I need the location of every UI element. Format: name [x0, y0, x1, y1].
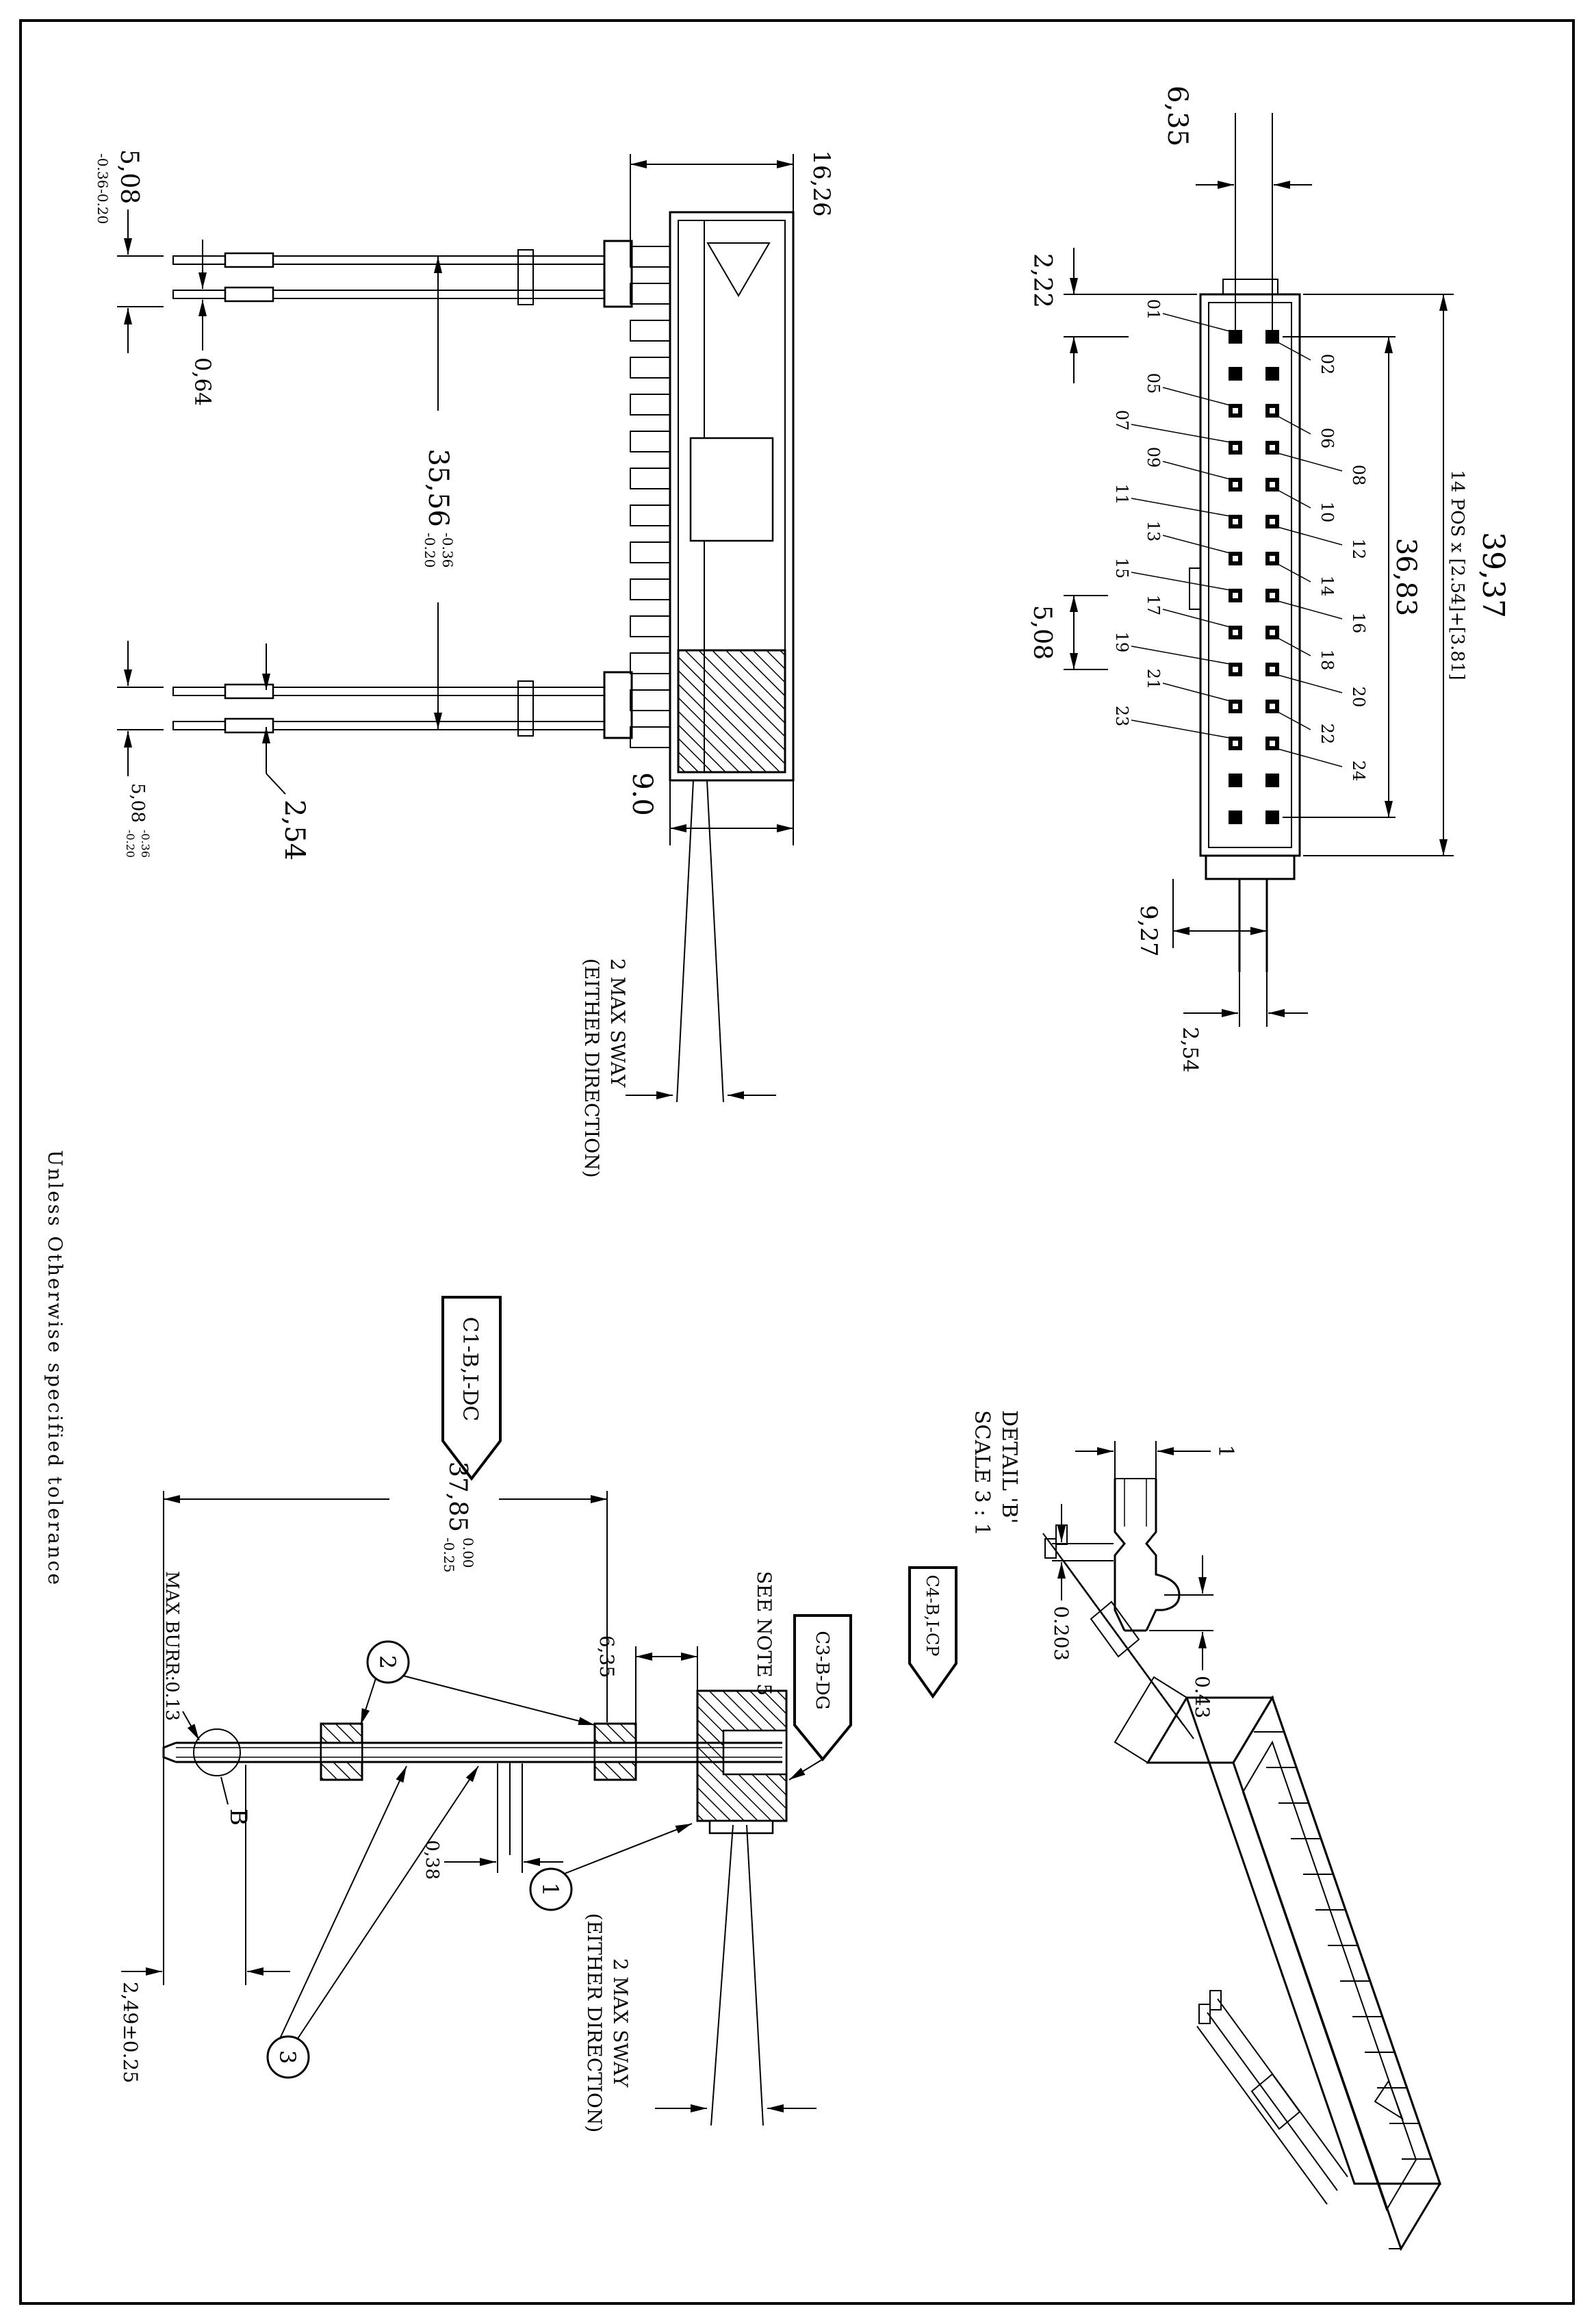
max-burr-note: MAX BURR:0.13	[162, 1571, 199, 1740]
dim-text: 16,26	[808, 150, 835, 216]
dim-text: 2,49±0.25	[119, 1982, 142, 2083]
dim-1: 1	[1075, 1441, 1237, 1479]
dim-text: 1	[1213, 1444, 1237, 1457]
rotated-drawing-area: 01 05 07 09 11 13 15 17 19 21 23 02 06 0…	[0, 0, 1594, 2324]
dim-text: 5,08	[1028, 605, 1056, 660]
pin-label: 07	[1112, 410, 1131, 431]
pin-label: 10	[1317, 502, 1337, 523]
max-burr-text: MAX BURR:0.13	[162, 1571, 182, 1721]
tol-lo: -0.25	[441, 1537, 457, 1572]
assembly-sway-callout: 2 MAX SWAY (EITHER DIRECTION)	[583, 1825, 817, 2132]
pin-label: 08	[1349, 465, 1368, 486]
dim-5-08-right: 5,08 -0.36 -0.20	[117, 641, 164, 858]
pin-label: 24	[1349, 761, 1368, 782]
tol-lo: -0.20	[422, 533, 438, 567]
tolerance-note: Unless Otherwise specified tolerance	[44, 1150, 66, 1587]
dim-text: 5,08	[115, 149, 143, 204]
flag-c4-text: C4-B,I-CP	[923, 1574, 942, 1656]
flag-c3-text: C3-B-DG	[812, 1631, 832, 1709]
pin-label: 09	[1144, 447, 1163, 468]
front-teeth-row	[630, 246, 670, 748]
drawing-sheet: 01 05 07 09 11 13 15 17 19 21 23 02 06 0…	[0, 0, 1594, 2324]
dim-6-35-assembly: 6,35	[595, 1635, 697, 1724]
dim-2-54-front: 2,54	[266, 643, 310, 860]
dim-text: 0,64	[190, 357, 216, 406]
assembly-pin	[164, 1743, 782, 1855]
sway-text-1: 2 MAX SWAY	[606, 958, 629, 1088]
tol-lo: -0.20	[94, 189, 111, 224]
dim-5-08-left: 5,08 -0.36 -0.20	[94, 149, 164, 353]
plan-view: 01 05 07 09 11 13 15 17 19 21 23 02 06 0…	[1028, 86, 1511, 1073]
dim-text: 35,56	[422, 448, 454, 527]
dim-text: 5,08	[127, 783, 148, 823]
balloon-3: 3	[268, 1766, 478, 2078]
pin-label: 02	[1317, 354, 1337, 375]
plan-pin-field	[1229, 330, 1279, 824]
sway-text-2: (EITHER DIRECTION)	[580, 958, 603, 1178]
pin-label: 06	[1317, 428, 1337, 449]
pin-label: 17	[1144, 595, 1163, 616]
dim-text: 2,22	[1028, 253, 1056, 308]
dim-text: 0,38	[422, 1840, 442, 1880]
dim-text: 6,35	[595, 1635, 618, 1678]
dim-9-27: 9,27	[1135, 879, 1267, 957]
pin-label: 12	[1349, 539, 1368, 560]
pin-label: 05	[1144, 373, 1163, 394]
detail-pin-shape	[1115, 1479, 1179, 1631]
balloon-3-text: 3	[274, 2050, 300, 2064]
sheet-border	[21, 21, 1573, 2303]
detail-scale: SCALE 3 : 1	[970, 1410, 994, 1536]
dim-text: 9.0	[626, 772, 658, 816]
dim-5-08-plan: 5,08	[1028, 596, 1108, 669]
plan-tail-pins	[1239, 879, 1267, 972]
dim-0-38: 0,38	[422, 1763, 563, 1880]
dim-text: 9,27	[1135, 905, 1162, 957]
pin-label: 15	[1112, 558, 1131, 579]
front-left-post	[173, 241, 632, 307]
assembly-view: C1-B,I-DC 37,85 0.00 -0.25 6,35 SEE NOTE…	[119, 1297, 851, 2132]
pin-label: 13	[1144, 521, 1163, 542]
dim-text: 36,83	[1390, 538, 1422, 617]
dim-text: 2,54	[279, 800, 310, 860]
tol-hi: 0.00	[460, 1537, 476, 1568]
pin-label: 20	[1349, 687, 1368, 708]
front-body	[670, 212, 793, 780]
dim-36-83: 36,83	[1283, 337, 1422, 817]
dim-35-56: 35,56 -0.36 -0.20	[422, 257, 456, 729]
dim-text: 39,37	[1476, 532, 1511, 618]
detail-title: DETAIL 'B'	[997, 1410, 1021, 1524]
engineering-drawing: 01 05 07 09 11 13 15 17 19 21 23 02 06 0…	[0, 0, 1594, 2324]
pin-label: 22	[1317, 724, 1337, 745]
front-sway-callout: 2 MAX SWAY (EITHER DIRECTION)	[580, 780, 776, 1178]
dim-text: 6,35	[1161, 86, 1193, 146]
tol-hi: -0.36	[94, 153, 111, 188]
balloon-2: 2	[361, 1642, 595, 1725]
flag-c1: C1-B,I-DC	[443, 1297, 500, 1479]
iso-bracket	[1115, 1677, 1187, 1763]
pin-label: 18	[1317, 650, 1337, 671]
pin-label: 01	[1144, 299, 1163, 320]
pin-label: 16	[1349, 613, 1368, 634]
assembly-wafer-b	[321, 1724, 362, 1780]
pin-label: 11	[1112, 484, 1131, 505]
balloon-1: 1	[530, 1824, 692, 1910]
flag-c4: C4-B,I-CP	[910, 1568, 956, 1696]
dim-text: 2,54	[1178, 1027, 1202, 1073]
tol-lo: -0.20	[124, 830, 137, 858]
iso-teeth	[1254, 1732, 1432, 2159]
pos-note-text: 14 POS x [2.54]+[3.81]	[1447, 470, 1467, 680]
pin-label: 23	[1112, 706, 1131, 727]
tol-hi: -0.36	[139, 830, 152, 858]
balloon-1-text: 1	[537, 1882, 563, 1896]
sway-text-1: 2 MAX SWAY	[609, 1958, 632, 2088]
dim-16-26: 16,26	[630, 150, 835, 246]
assembly-wafer-a	[595, 1724, 636, 1780]
pin-label: 21	[1144, 669, 1163, 690]
sway-text-2: (EITHER DIRECTION)	[583, 1913, 606, 2133]
front-view: 16,26 9.0 35,56 -0.36 -0.20 0,64	[94, 149, 835, 1178]
dim-6-35-plan: 6,35	[1161, 86, 1312, 330]
balloon-2-text: 2	[374, 1655, 400, 1669]
iso-body	[1148, 1698, 1440, 2249]
flag-c3: C3-B-DG	[789, 1616, 851, 1780]
pin-label: 14	[1317, 576, 1337, 597]
datum-b-label: B	[224, 1809, 252, 1826]
pin-label: 19	[1112, 632, 1131, 653]
tol-hi: -0.36	[439, 533, 456, 567]
flag-c1-text: C1-B,I-DC	[458, 1317, 482, 1422]
see-note-text: SEE NOTE 5	[753, 1571, 775, 1696]
isometric-view	[1043, 1525, 1440, 2249]
dim-text: 37,85	[444, 1461, 472, 1532]
dim-text: 0.203	[1050, 1606, 1072, 1661]
plan-pin-labels-odd: 01 05 07 09 11 13 15 17 19 21 23	[1112, 299, 1230, 738]
detail-view: 1 0.43 0.203 DETAIL 'B' SCALE 3 : 1	[910, 1410, 1237, 1718]
dim-2-54-plan: 2,54	[1178, 972, 1308, 1073]
dim-2-49: 2,49±0.25	[119, 1765, 290, 2083]
front-right-post	[173, 672, 632, 738]
plan-body-outline	[1190, 279, 1300, 879]
